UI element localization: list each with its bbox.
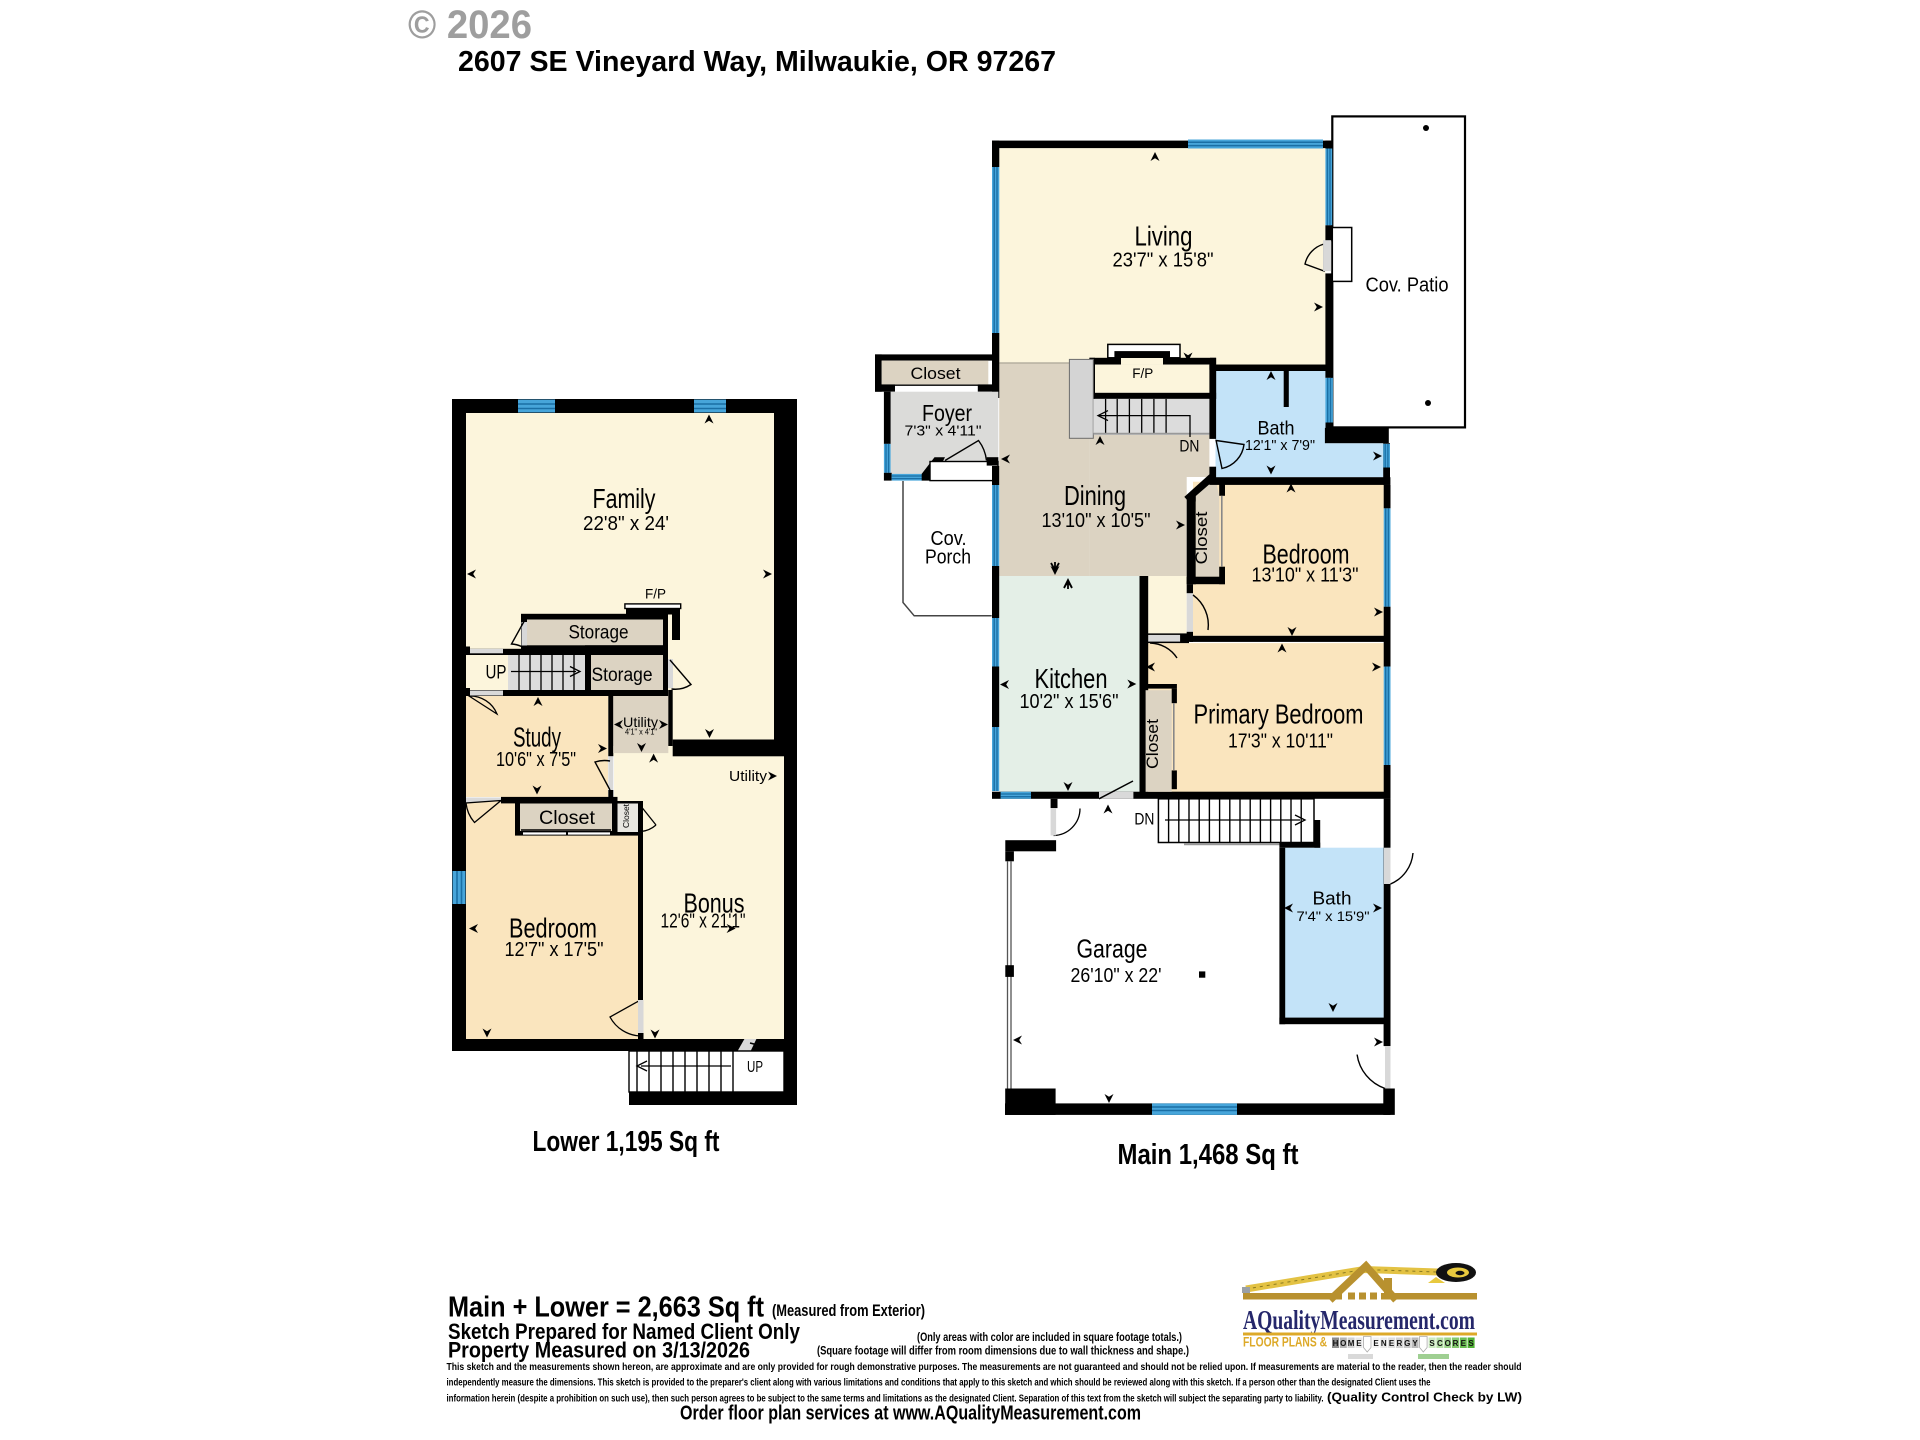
- svg-text:7'3" x 4'11": 7'3" x 4'11": [905, 423, 982, 440]
- svg-text:Garage: Garage: [1077, 934, 1148, 964]
- svg-text:F/P: F/P: [645, 586, 666, 602]
- svg-text:G: G: [1404, 1339, 1410, 1348]
- svg-text:Property Measured on 3/13/2026: Property Measured on 3/13/2026: [448, 1338, 750, 1363]
- svg-text:E: E: [1389, 1339, 1395, 1348]
- svg-text:13'10" x 11'3": 13'10" x 11'3": [1252, 564, 1359, 587]
- svg-text:UP: UP: [747, 1059, 763, 1076]
- svg-text:C: C: [1437, 1339, 1443, 1348]
- svg-text:Closet: Closet: [1193, 511, 1211, 564]
- svg-text:Porch: Porch: [925, 545, 971, 568]
- svg-text:Lower 1,195 Sq ft: Lower 1,195 Sq ft: [533, 1126, 720, 1158]
- svg-text:Closet: Closet: [539, 807, 596, 829]
- svg-text:12'7" x 17'5": 12'7" x 17'5": [505, 938, 604, 961]
- svg-text:(Quality Control Check by LW): (Quality Control Check by LW): [1327, 1390, 1522, 1405]
- svg-text:DN: DN: [1134, 810, 1154, 829]
- svg-text:This sketch and the measuremen: This sketch and the measurements shown h…: [447, 1361, 1522, 1373]
- svg-text:22'8" x 24': 22'8" x 24': [583, 512, 669, 535]
- svg-text:12'1" x 7'9": 12'1" x 7'9": [1245, 438, 1315, 454]
- svg-text:Closet: Closet: [911, 365, 961, 383]
- svg-text:Storage: Storage: [569, 623, 629, 644]
- svg-text:Bath: Bath: [1313, 888, 1352, 909]
- svg-text:O: O: [1340, 1339, 1346, 1348]
- svg-text:10'2" x 15'6": 10'2" x 15'6": [1020, 690, 1119, 713]
- svg-text:(Measured from Exterior): (Measured from Exterior): [772, 1302, 925, 1320]
- svg-text:Family: Family: [593, 483, 656, 514]
- svg-text:R: R: [1397, 1339, 1403, 1348]
- svg-text:(Square footage will differ fr: (Square footage will differ from room di…: [817, 1346, 1189, 1358]
- svg-text:(Only areas with color are inc: (Only areas with color are included in s…: [917, 1332, 1182, 1344]
- svg-text:26'10" x 22': 26'10" x 22': [1071, 964, 1162, 987]
- svg-text:DN: DN: [1179, 437, 1199, 456]
- svg-text:Cov. Patio: Cov. Patio: [1366, 274, 1449, 297]
- svg-text:UP: UP: [486, 663, 507, 684]
- svg-text:Closet: Closet: [621, 803, 631, 828]
- svg-text:S: S: [1429, 1339, 1435, 1348]
- svg-text:Storage: Storage: [592, 665, 653, 686]
- svg-text:S: S: [1468, 1339, 1474, 1348]
- svg-text:Y: Y: [1412, 1339, 1418, 1348]
- svg-text:10'6" x 7'5": 10'6" x 7'5": [496, 748, 576, 771]
- svg-text:E: E: [1373, 1339, 1379, 1348]
- svg-text:4'1" x 4'1": 4'1" x 4'1": [625, 727, 657, 737]
- svg-text:Living: Living: [1135, 220, 1193, 251]
- svg-text:E: E: [1461, 1339, 1467, 1348]
- svg-text:13'10" x 10'5": 13'10" x 10'5": [1042, 509, 1151, 532]
- svg-text:Dining: Dining: [1064, 480, 1126, 511]
- svg-text:O: O: [1445, 1339, 1451, 1348]
- svg-text:Order floor plan services at w: Order floor plan services at www.AQualit…: [680, 1402, 1141, 1425]
- svg-text:Closet: Closet: [1144, 719, 1162, 769]
- svg-text:Primary Bedroom: Primary Bedroom: [1194, 699, 1364, 730]
- svg-text:17'3" x 10'11": 17'3" x 10'11": [1228, 730, 1333, 753]
- svg-text:E: E: [1356, 1339, 1362, 1348]
- svg-text:R: R: [1453, 1339, 1459, 1348]
- svg-text:23'7" x 15'8": 23'7" x 15'8": [1113, 248, 1214, 271]
- svg-text:N: N: [1381, 1339, 1387, 1348]
- svg-text:independently measure the dime: independently measure the dimensions. Th…: [447, 1377, 1431, 1389]
- svg-text:AQualityMeasurement.com: AQualityMeasurement.com: [1243, 1305, 1475, 1335]
- svg-text:M: M: [1348, 1339, 1355, 1348]
- svg-text:7'4" x 15'9": 7'4" x 15'9": [1297, 908, 1370, 924]
- svg-text:Main 1,468 Sq ft: Main 1,468 Sq ft: [1118, 1139, 1299, 1171]
- svg-text:F/P: F/P: [1132, 365, 1153, 381]
- svg-text:Utility: Utility: [729, 768, 768, 785]
- svg-text:FLOOR PLANS &: FLOOR PLANS &: [1243, 1335, 1327, 1350]
- svg-text:Bath: Bath: [1258, 419, 1295, 440]
- svg-text:H: H: [1333, 1339, 1339, 1348]
- svg-text:© 2026: © 2026: [408, 3, 532, 47]
- svg-text:2607 SE Vineyard Way, Milwauki: 2607 SE Vineyard Way, Milwaukie, OR 9726…: [458, 46, 1056, 78]
